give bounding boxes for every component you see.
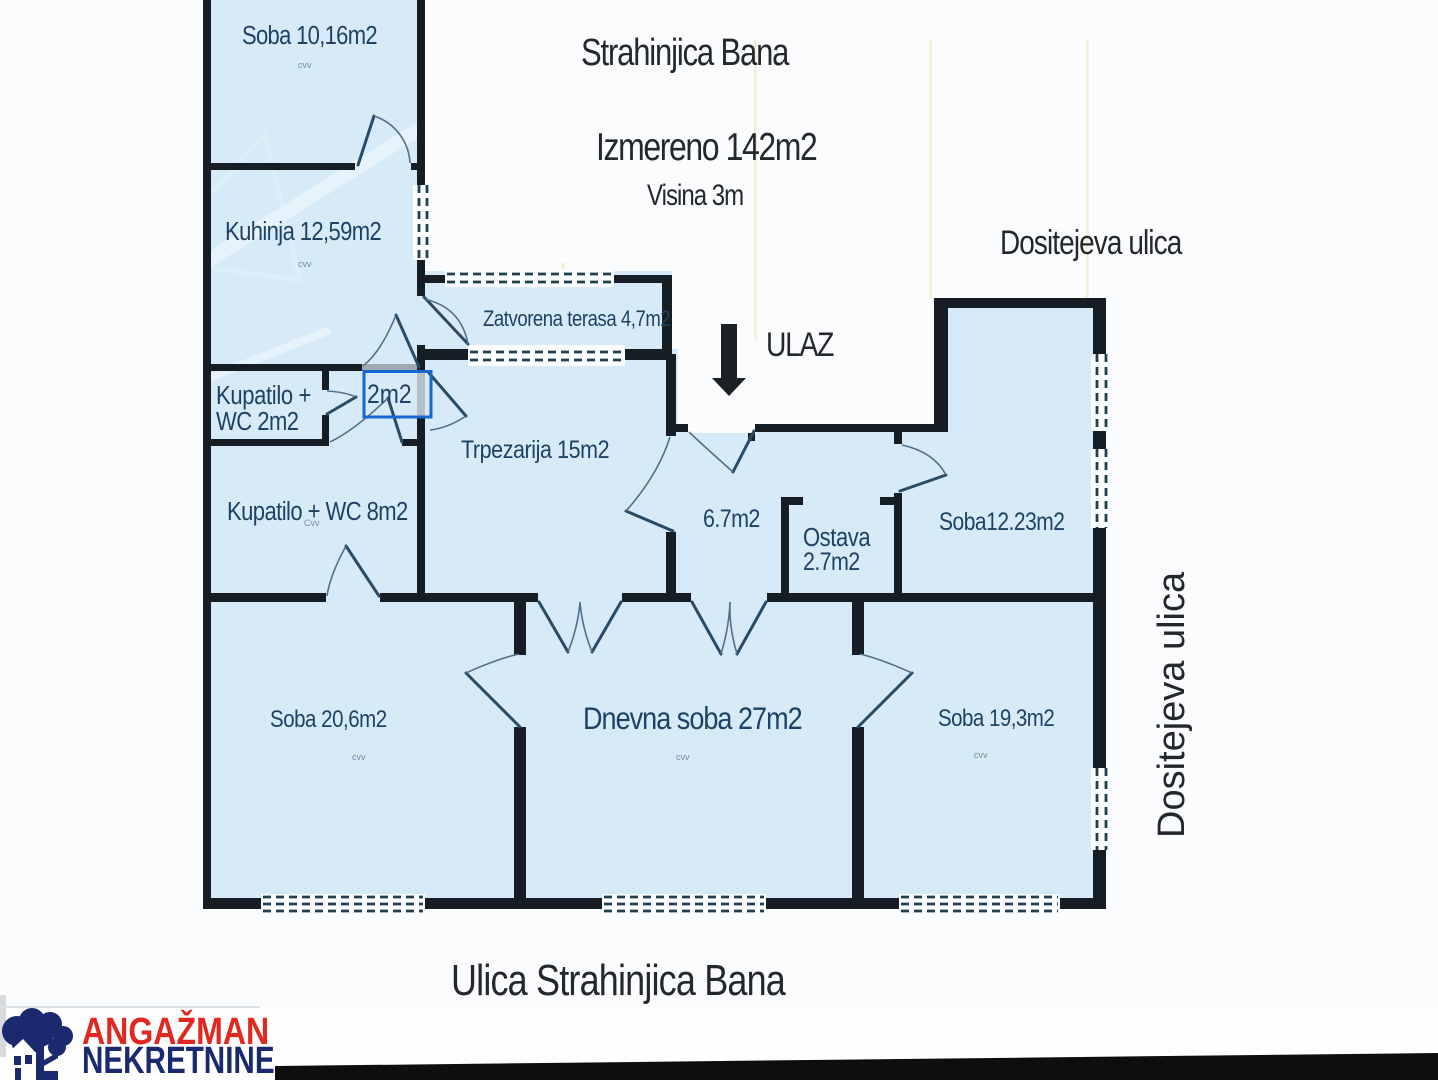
svg-text:Dositejeva ulica: Dositejeva ulica [1151,571,1193,838]
svg-text:Dositejeva ulica: Dositejeva ulica [1000,223,1183,261]
svg-text:Soba 19,3m2: Soba 19,3m2 [938,704,1054,731]
svg-text:6.7m2: 6.7m2 [703,504,760,532]
svg-text:cvv: cvv [352,752,366,762]
svg-text:cvv: cvv [974,750,988,760]
svg-text:2m2: 2m2 [367,379,412,409]
svg-text:NEKRETNINE: NEKRETNINE [82,1040,275,1080]
svg-text:cvv: cvv [298,259,312,269]
svg-text:Zatvorena terasa 4,7m2: Zatvorena terasa 4,7m2 [483,308,670,332]
svg-text:Ulica Strahinjica Bana: Ulica Strahinjica Bana [451,956,786,1005]
svg-text:Trpezarija 15m2: Trpezarija 15m2 [461,435,609,463]
svg-text:Izmereno 142m2: Izmereno 142m2 [596,125,817,169]
svg-text:Dnevna soba 27m2: Dnevna soba 27m2 [583,701,802,737]
svg-text:2.7m2: 2.7m2 [803,547,860,575]
svg-text:WC 2m2: WC 2m2 [216,407,299,436]
svg-text:Soba 20,6m2: Soba 20,6m2 [270,705,387,732]
svg-text:Kuhinja 12,59m2: Kuhinja 12,59m2 [225,217,381,246]
svg-text:cvv: cvv [676,752,690,762]
svg-text:ULAZ: ULAZ [766,324,834,363]
svg-text:Cvv: Cvv [304,518,320,528]
svg-text:Strahinjica Bana: Strahinjica Bana [581,32,790,74]
svg-text:Soba12.23m2: Soba12.23m2 [939,507,1065,535]
svg-text:cvv: cvv [298,60,312,70]
svg-text:Kupatilo +: Kupatilo + [216,381,311,410]
svg-text:Visina 3m: Visina 3m [647,179,743,212]
svg-text:Soba 10,16m2: Soba 10,16m2 [242,21,377,50]
